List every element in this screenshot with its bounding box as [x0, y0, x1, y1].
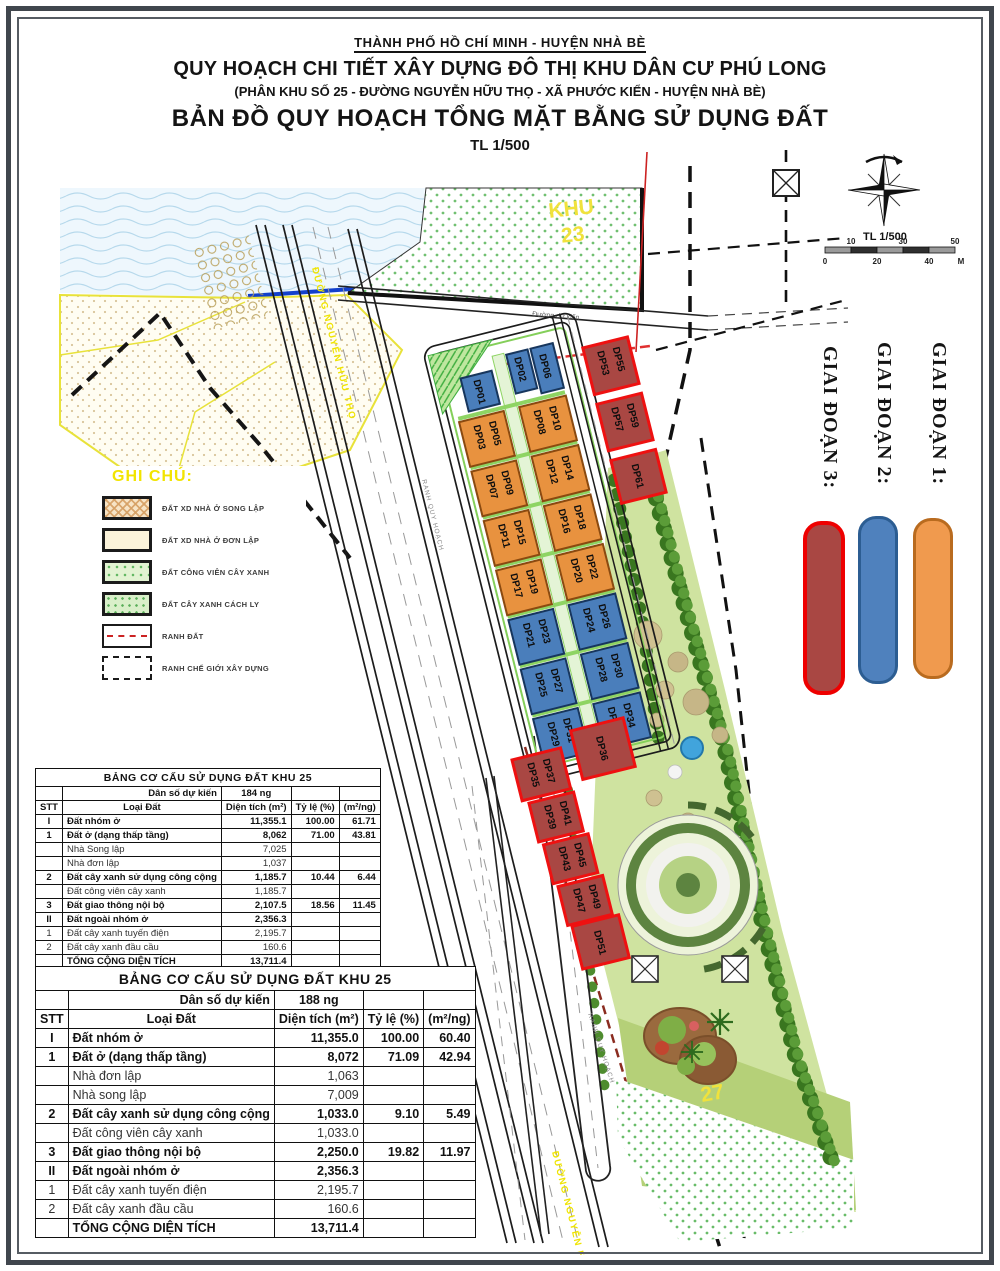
legend-item: ĐẤT CÂY XANH CÁCH LY	[102, 592, 302, 616]
legend-title: GHI CHÚ:	[112, 468, 302, 486]
table-row: 2 Đất cây xanh sử dụng công cộng 1,185.7…	[36, 871, 381, 885]
cell-stt: 1	[36, 829, 63, 843]
fountain-icon	[722, 956, 748, 982]
map-scale-title: TL 1/500	[0, 137, 1000, 154]
col-header: (m²/ng)	[424, 1010, 475, 1029]
cell-area: 2,107.5	[221, 899, 291, 913]
title-block: THÀNH PHỐ HỒ CHÍ MINH - HUYỆN NHÀ BÈ QUY…	[0, 34, 1000, 154]
cell-area: 2,250.0	[274, 1143, 363, 1162]
table-row: 1 Đất ở (dạng thấp tầng) 8,072 71.09 42.…	[36, 1048, 476, 1067]
cell-percent	[291, 885, 339, 899]
cell-area: 2,356.3	[221, 913, 291, 927]
population-label: Dân số dự kiến	[62, 787, 221, 801]
col-header: STT	[36, 1010, 69, 1029]
legend-item-label: ĐẤT CÔNG VIÊN CÂY XANH	[162, 568, 269, 577]
legend-swatch	[102, 528, 152, 552]
cell-per-capita	[424, 1067, 475, 1086]
legend-item: ĐẤT XD NHÀ Ở SONG LẬP	[102, 496, 302, 520]
cell-per-capita	[339, 941, 380, 955]
cell-stt: 1	[36, 1181, 69, 1200]
cell-area: 2,195.7	[221, 927, 291, 941]
cell-stt: 2	[36, 941, 63, 955]
cell-percent	[291, 843, 339, 857]
lot-dp17-dp19: DP17DP19	[496, 559, 552, 615]
pond	[681, 737, 703, 759]
cell-per-capita	[424, 1200, 475, 1219]
cell-per-capita: 61.71	[339, 815, 380, 829]
cell-per-capita: 42.94	[424, 1048, 475, 1067]
phase1-color-pill	[913, 518, 953, 679]
cell-stt	[36, 843, 63, 857]
cell-percent	[363, 1162, 423, 1181]
cell-land-type: Đất ngoài nhóm ở	[68, 1162, 274, 1181]
boundary-label-2: RANH QUY HOẠCH	[586, 1012, 615, 1084]
cell-percent	[291, 913, 339, 927]
cell-percent	[363, 1181, 423, 1200]
cell-per-capita: 43.81	[339, 829, 380, 843]
cell-land-type: Đất giao thông nội bộ	[68, 1143, 274, 1162]
lot-dp16-dp18: DP16DP18	[544, 495, 602, 551]
cell-area: 8,062	[221, 829, 291, 843]
cell-per-capita: 6.44	[339, 871, 380, 885]
col-header: STT	[36, 801, 63, 815]
table-title: BẢNG CƠ CẤU SỬ DỤNG ĐẤT KHU 25	[36, 769, 381, 787]
cell-percent	[363, 1200, 423, 1219]
table-row: I Đất nhóm ở 11,355.1 100.00 61.71	[36, 815, 381, 829]
phase2-color-pill	[858, 516, 898, 684]
legend-swatch	[102, 496, 152, 520]
cell-land-type: Đất cây xanh tuyến điện	[62, 927, 221, 941]
project-title: QUY HOẠCH CHI TIẾT XÂY DỰNG ĐÔ THỊ KHU D…	[0, 58, 1000, 81]
col-header: Diện tích (m²)	[274, 1010, 363, 1029]
legend-item: RANH CHẾ GIỚI XÂY DỰNG	[102, 656, 302, 680]
cell-per-capita	[339, 913, 380, 927]
cell-land-type: Đất nhóm ở	[62, 815, 221, 829]
lot-dp11-dp15: DP11DP15	[484, 510, 540, 566]
cell-area: 1,185.7	[221, 885, 291, 899]
table-row: Đất công viên cây xanh 1,185.7	[36, 885, 381, 899]
cell-area: 13,711.4	[274, 1219, 363, 1238]
legend-item: ĐẤT XD NHÀ Ở ĐƠN LẬP	[102, 528, 302, 552]
cell-per-capita	[424, 1181, 475, 1200]
khu23-label-word: KHU	[547, 195, 595, 223]
cell-percent	[363, 1067, 423, 1086]
cell-stt: 2	[36, 871, 63, 885]
cell-percent: 9.10	[363, 1105, 423, 1124]
cell-per-capita	[339, 843, 380, 857]
cell-land-type: Nhà đơn lập	[62, 857, 221, 871]
phase2-label: GIAI ĐOẠN 2:	[872, 342, 895, 485]
lot-dp28-dp30: DP28DP30	[581, 643, 639, 699]
cell-per-capita	[424, 1086, 475, 1105]
cell-area: 1,185.7	[221, 871, 291, 885]
cell-per-capita	[424, 1124, 475, 1143]
cell-percent	[363, 1086, 423, 1105]
lot-dp43-dp45: DP43DP45	[543, 834, 597, 884]
col-header: (m²/ng)	[339, 801, 380, 815]
svg-text:M: M	[958, 257, 965, 266]
land-use-table-khu25-a: BẢNG CƠ CẤU SỬ DỤNG ĐẤT KHU 25 Dân số dự…	[35, 768, 381, 969]
table-row: II Đất ngoài nhóm ở 2,356.3	[36, 1162, 476, 1181]
cell-land-type: Đất công viên cây xanh	[62, 885, 221, 899]
cell-land-type: Nhà Song lập	[62, 843, 221, 857]
table-title: BẢNG CƠ CẤU SỬ DỤNG ĐẤT KHU 25	[36, 967, 476, 991]
cell-percent: 10.44	[291, 871, 339, 885]
main-road-label-bottom: ĐƯỜNG NGUYỄN HỮU THỌ	[549, 1150, 599, 1255]
cell-area: 160.6	[221, 941, 291, 955]
legend-item-label: ĐẤT XD NHÀ Ở SONG LẬP	[162, 504, 264, 513]
cell-land-type: Đất cây xanh sử dụng công cộng	[68, 1105, 274, 1124]
table-row: Nhà đơn lập 1,063	[36, 1067, 476, 1086]
svg-text:20: 20	[873, 257, 882, 266]
col-header: Loại Đất	[68, 1010, 274, 1029]
lot-dp07-dp09: DP07DP09	[471, 461, 527, 517]
cell-area: 1,063	[274, 1067, 363, 1086]
cell-area: 1,037	[221, 857, 291, 871]
lot-dp21-dp23: DP21DP23	[508, 609, 564, 665]
cell-stt: 3	[36, 1143, 69, 1162]
cell-land-type: Đất ở (dạng thấp tầng)	[62, 829, 221, 843]
cell-land-type: Đất ngoài nhóm ở	[62, 913, 221, 927]
cell-per-capita	[424, 1162, 475, 1181]
col-header: Tỷ lệ (%)	[363, 1010, 423, 1029]
cell-percent: 71.09	[363, 1048, 423, 1067]
cell-area: 2,195.7	[274, 1181, 363, 1200]
table-row: Đất công viên cây xanh 1,033.0	[36, 1124, 476, 1143]
cell-stt	[36, 857, 63, 871]
population-label: Dân số dự kiến	[68, 991, 274, 1010]
cell-stt	[36, 1124, 69, 1143]
legend-item-label: ĐẤT XD NHÀ Ở ĐƠN LẬP	[162, 536, 259, 545]
map-title: BẢN ĐỒ QUY HOẠCH TỔNG MẶT BẰNG SỬ DỤNG Đ…	[0, 105, 1000, 133]
cell-land-type: TỔNG CỘNG DIỆN TÍCH	[68, 1219, 274, 1238]
phase3-color-pill	[803, 521, 845, 695]
cell-land-type: Nhà song lập	[68, 1086, 274, 1105]
lot-dp01: DP01	[461, 371, 500, 412]
table-row: Nhà Song lập 7,025	[36, 843, 381, 857]
legend-swatch	[102, 624, 152, 648]
table-row: 2 Đất cây xanh sử dụng công cộng 1,033.0…	[36, 1105, 476, 1124]
lot-dp51: DP51	[572, 915, 629, 969]
cell-percent: 18.56	[291, 899, 339, 913]
cell-land-type: Đất cây xanh đầu cầu	[68, 1200, 274, 1219]
lot-dp53-dp55: DP53DP55	[583, 337, 639, 395]
cell-stt	[36, 1086, 69, 1105]
svg-text:0: 0	[823, 257, 828, 266]
cell-stt	[36, 885, 63, 899]
cell-land-type: Nhà đơn lập	[68, 1067, 274, 1086]
legend-item-label: RANH CHẾ GIỚI XÂY DỰNG	[162, 664, 269, 673]
cell-stt	[36, 1067, 69, 1086]
cell-stt: 3	[36, 899, 63, 913]
table-row: I Đất nhóm ở 11,355.0 100.00 60.40	[36, 1029, 476, 1048]
cell-land-type: Đất ở (dạng thấp tầng)	[68, 1048, 274, 1067]
cell-percent: 100.00	[363, 1029, 423, 1048]
cell-stt: 1	[36, 1048, 69, 1067]
cell-stt: I	[36, 1029, 69, 1048]
lot-dp25-dp27: DP25DP27	[521, 658, 577, 714]
legend-item-label: ĐẤT CÂY XANH CÁCH LY	[162, 600, 259, 609]
cell-per-capita: 60.40	[424, 1029, 475, 1048]
legend-swatch	[102, 560, 152, 584]
phase3-label: GIAI ĐOẠN 3:	[818, 346, 841, 489]
cell-stt: II	[36, 913, 63, 927]
legend-item: ĐẤT CÔNG VIÊN CÂY XANH	[102, 560, 302, 584]
cell-stt: 2	[36, 1200, 69, 1219]
cell-per-capita	[339, 857, 380, 871]
legend-item-label: RANH ĐẤT	[162, 632, 204, 641]
col-header: Loại Đất	[62, 801, 221, 815]
khu23-label-num: 23	[560, 222, 586, 247]
svg-text:10: 10	[847, 237, 856, 246]
table-row: 2 Đất cây xanh đầu cầu 160.6	[36, 1200, 476, 1219]
cell-area: 2,356.3	[274, 1162, 363, 1181]
plan-sheet: THÀNH PHỐ HỒ CHÍ MINH - HUYỆN NHÀ BÈ QUY…	[0, 0, 1000, 1271]
table-row: 3 Đất giao thông nội bộ 2,107.5 18.56 11…	[36, 899, 381, 913]
cell-area: 160.6	[274, 1200, 363, 1219]
lot-dp20-dp22: DP20DP22	[556, 544, 614, 600]
fountain-icon	[632, 956, 658, 982]
lot-dp08-dp10: DP08DP10	[519, 396, 577, 452]
svg-text:30: 30	[899, 237, 908, 246]
compass-rose-icon	[848, 154, 920, 226]
cell-land-type: Đất cây xanh đầu cầu	[62, 941, 221, 955]
cell-stt: II	[36, 1162, 69, 1181]
cell-stt: I	[36, 815, 63, 829]
cell-per-capita: 11.45	[339, 899, 380, 913]
table-row: 2 Đất cây xanh đầu cầu 160.6	[36, 941, 381, 955]
population-value: 184 ng	[221, 787, 291, 801]
table-row: 1 Đất cây xanh tuyến điện 2,195.7	[36, 927, 381, 941]
col-header: Tỷ lệ (%)	[291, 801, 339, 815]
cell-area: 8,072	[274, 1048, 363, 1067]
boundary-label-1: RANH QUY HOẠCH	[420, 479, 445, 552]
cell-percent	[363, 1124, 423, 1143]
lot-dp03-dp05: DP03DP05	[459, 411, 515, 467]
cell-land-type: Đất giao thông nội bộ	[62, 899, 221, 913]
phase1-label: GIAI ĐOẠN 1:	[927, 342, 950, 485]
legend-item: RANH ĐẤT	[102, 624, 302, 648]
table-row: TỔNG CỘNG DIỆN TÍCH 13,711.4	[36, 1219, 476, 1238]
cell-area: 7,025	[221, 843, 291, 857]
svg-text:40: 40	[925, 257, 934, 266]
cell-per-capita	[339, 927, 380, 941]
power-pylon-icon	[773, 170, 799, 196]
lot-dp57-dp59: DP57DP59	[597, 393, 653, 451]
cell-land-type: Đất công viên cây xanh	[68, 1124, 274, 1143]
lot-dp24-dp26: DP24DP26	[569, 593, 627, 649]
col-header: Diện tích (m²)	[221, 801, 291, 815]
svg-text:50: 50	[951, 237, 960, 246]
cell-percent: 100.00	[291, 815, 339, 829]
lot-dp61: DP61	[611, 449, 666, 503]
cell-area: 1,033.0	[274, 1105, 363, 1124]
cell-per-capita: 11.97	[424, 1143, 475, 1162]
cell-per-capita: 5.49	[424, 1105, 475, 1124]
cell-land-type: Đất cây xanh sử dụng công cộng	[62, 871, 221, 885]
cell-area: 11,355.0	[274, 1029, 363, 1048]
cell-percent	[291, 941, 339, 955]
cell-area: 1,033.0	[274, 1124, 363, 1143]
land-use-table-khu25-b: BẢNG CƠ CẤU SỬ DỤNG ĐẤT KHU 25 Dân số dự…	[35, 966, 476, 1238]
table-row: 3 Đất giao thông nội bộ 2,250.0 19.82 11…	[36, 1143, 476, 1162]
cell-per-capita	[424, 1219, 475, 1238]
lot-dp12-dp14: DP12DP14	[532, 445, 590, 501]
cell-area: 11,355.1	[221, 815, 291, 829]
cell-land-type: Đất nhóm ở	[68, 1029, 274, 1048]
table-row: Nhà đơn lập 1,037	[36, 857, 381, 871]
cell-percent	[363, 1219, 423, 1238]
cell-stt	[36, 1219, 69, 1238]
cell-percent: 71.00	[291, 829, 339, 843]
table-row: 1 Đất cây xanh tuyến điện 2,195.7	[36, 1181, 476, 1200]
legend-swatch	[102, 656, 152, 680]
lot-dp35-dp37: DP35DP37	[512, 748, 571, 801]
cell-land-type: Đất cây xanh tuyến điện	[68, 1181, 274, 1200]
population-value: 188 ng	[274, 991, 363, 1010]
map-legend: GHI CHÚ: ĐẤT XD NHÀ Ở SONG LẬP ĐẤT XD NH…	[98, 466, 306, 690]
cell-stt: 2	[36, 1105, 69, 1124]
project-subtitle: (PHÂN KHU SỐ 25 - ĐƯỜNG NGUYỄN HỮU THỌ -…	[0, 84, 1000, 99]
legend-swatch	[102, 592, 152, 616]
table-row: 1 Đất ở (dạng thấp tầng) 8,062 71.00 43.…	[36, 829, 381, 843]
table-row: Nhà song lập 7,009	[36, 1086, 476, 1105]
cell-per-capita	[339, 885, 380, 899]
region-title: THÀNH PHỐ HỒ CHÍ MINH - HUYỆN NHÀ BÈ	[354, 35, 646, 53]
khu27-label: 27	[699, 1080, 726, 1107]
lot-dp36: DP36	[571, 718, 635, 780]
cell-stt: 1	[36, 927, 63, 941]
cell-percent	[291, 857, 339, 871]
cell-percent	[291, 927, 339, 941]
cell-area: 7,009	[274, 1086, 363, 1105]
table-row: II Đất ngoài nhóm ở 2,356.3	[36, 913, 381, 927]
cell-percent: 19.82	[363, 1143, 423, 1162]
